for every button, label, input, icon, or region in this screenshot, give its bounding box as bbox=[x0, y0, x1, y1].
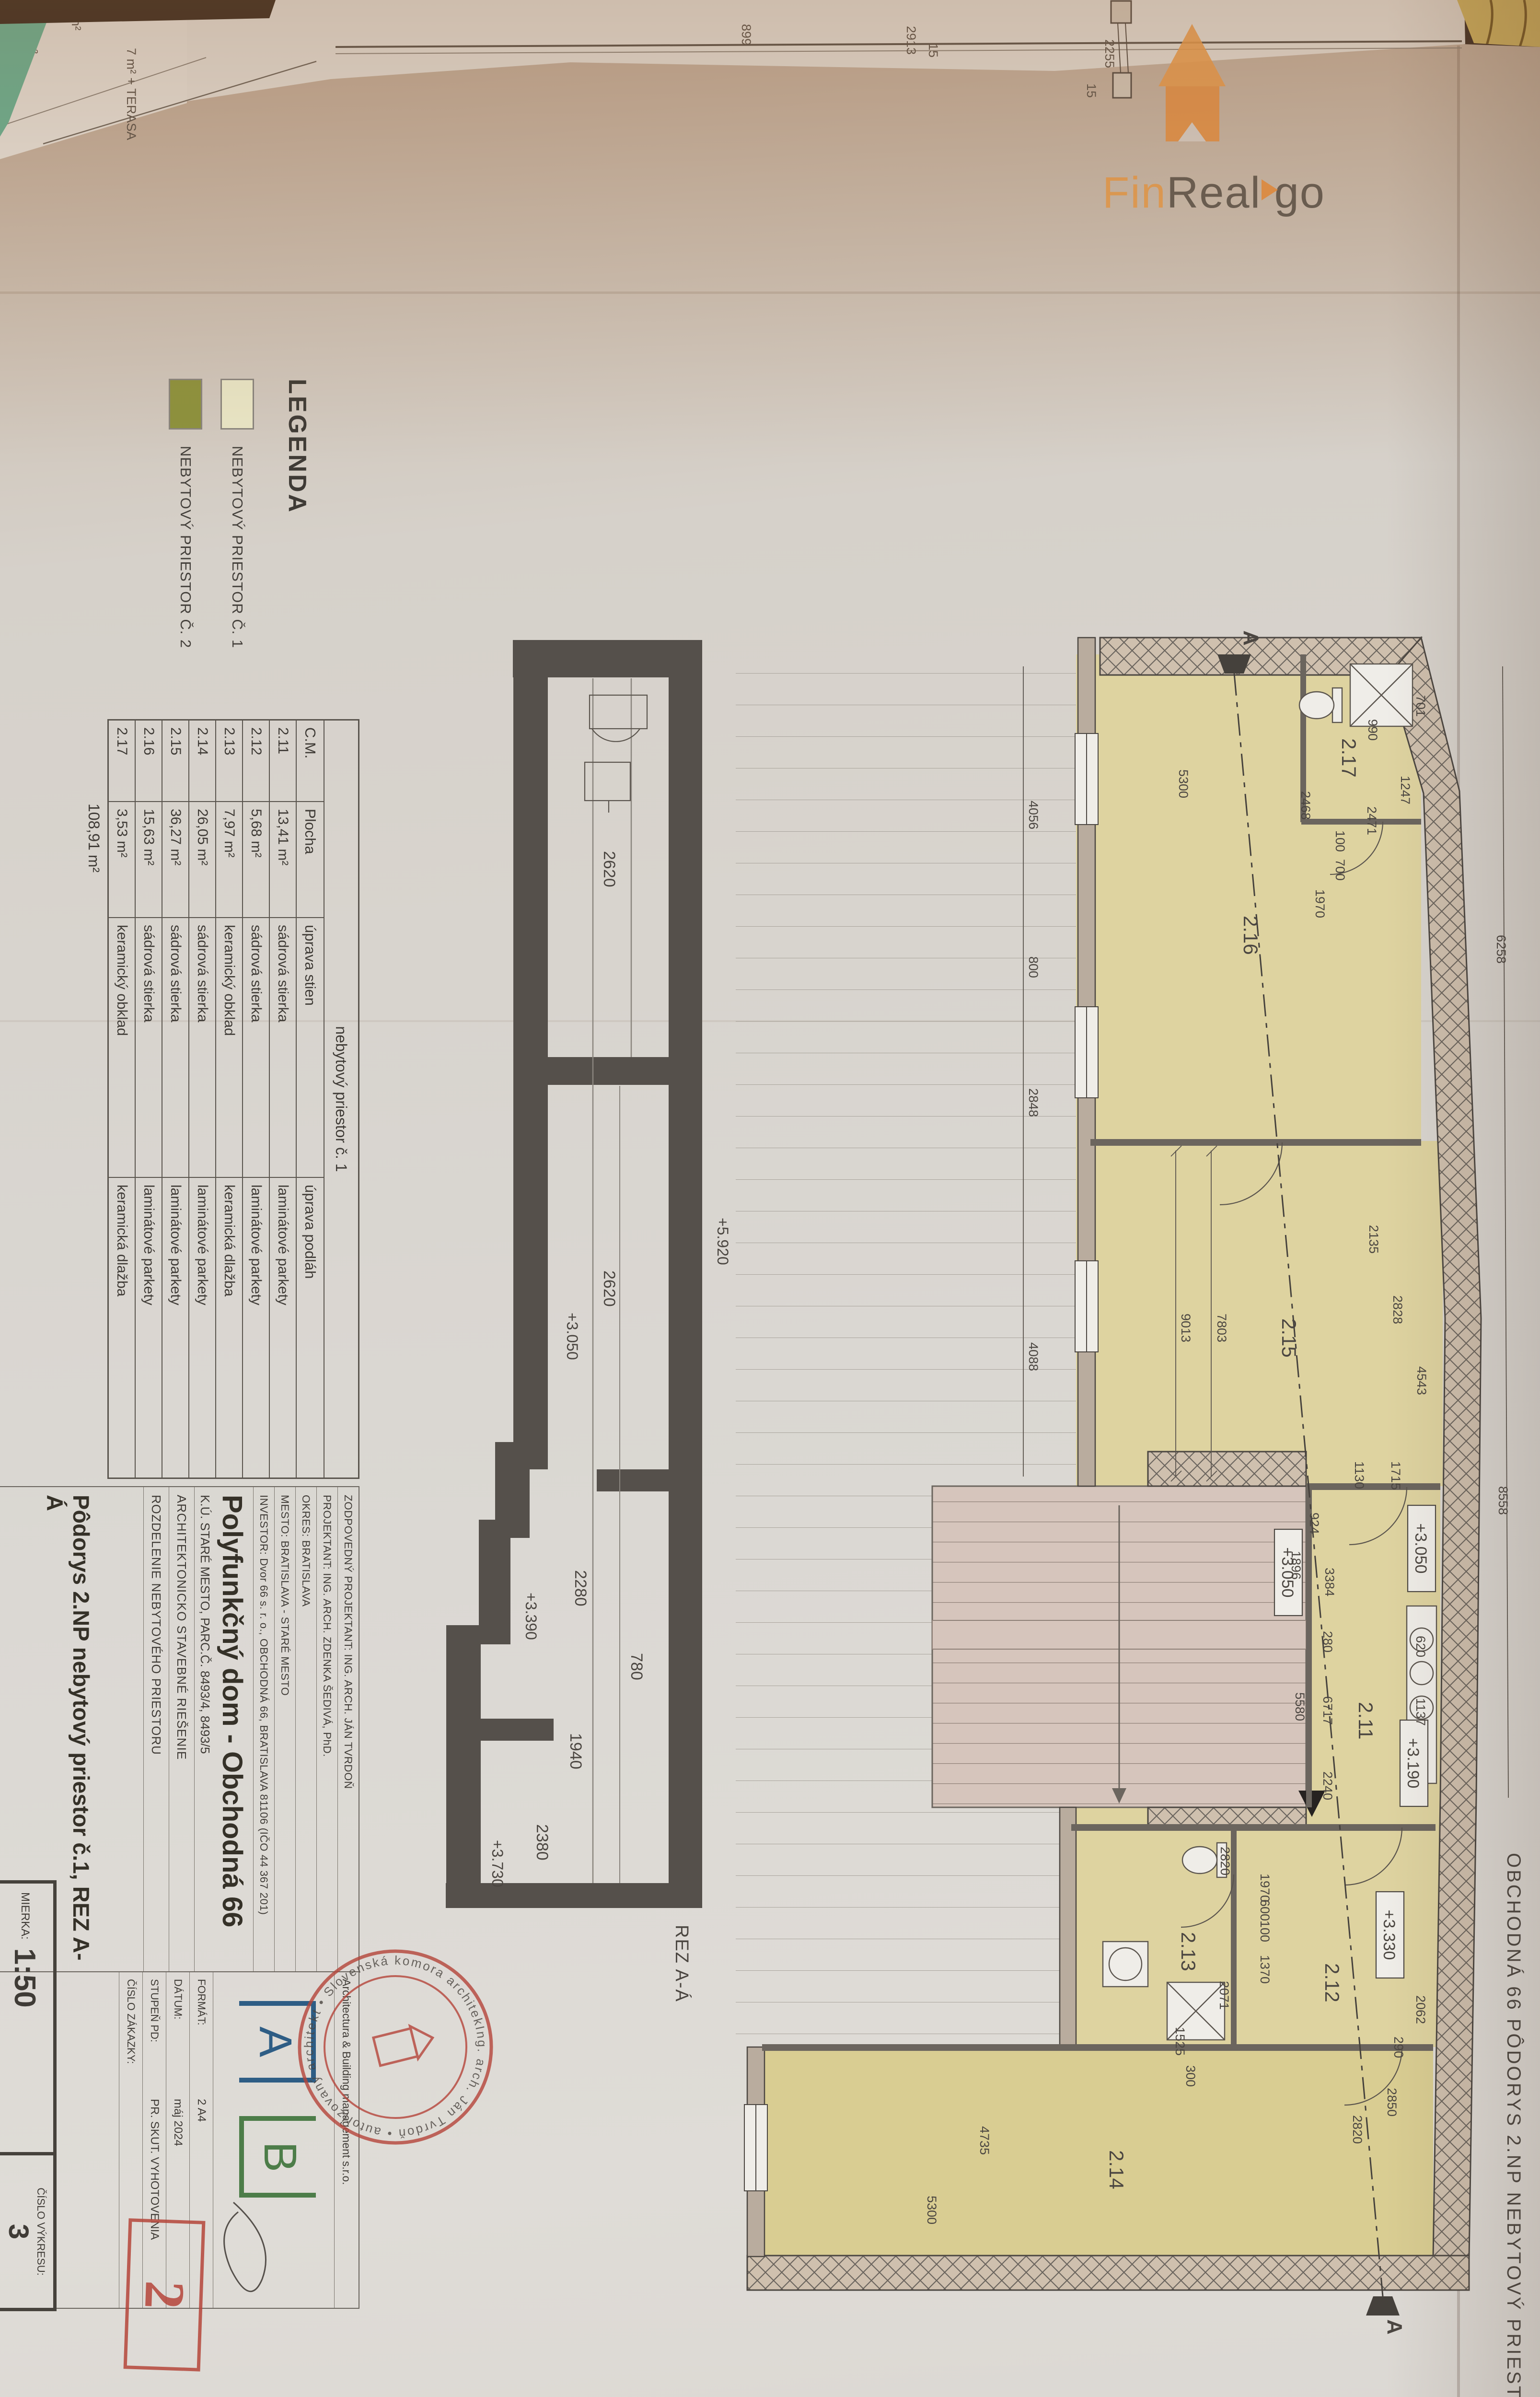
table-row: 2.1536,27 m²sádrová stierkalaminátové pa… bbox=[162, 721, 188, 1478]
legend-swatch bbox=[169, 379, 202, 430]
finrealgo-watermark: FinReal go bbox=[1093, 19, 1476, 225]
dimension-label: 1970 bbox=[1313, 889, 1327, 918]
dimension-label: 2820 bbox=[1218, 1847, 1232, 1875]
section-drawing: REZ A-Á 26202620228078019402380 +5.920+3… bbox=[446, 640, 731, 2002]
table-cell: sádrová stierka bbox=[136, 918, 162, 1178]
room-number-label: 2.12 bbox=[1321, 1963, 1343, 2002]
window bbox=[1075, 1261, 1098, 1352]
table-cell: laminátové parkety bbox=[189, 1178, 215, 1437]
dimension-label: 990 bbox=[1366, 719, 1380, 741]
dimension-label: 6717 bbox=[1320, 1696, 1335, 1725]
table-cell: 26,05 m² bbox=[189, 802, 215, 918]
dimension-label: 3384 bbox=[1322, 1568, 1337, 1596]
table-header-podlah: úprava podláh bbox=[297, 1178, 324, 1437]
section-dim-label: 2620 bbox=[600, 1270, 618, 1307]
table-cell: keramická dlažba bbox=[216, 1178, 242, 1437]
table-cell: keramický obklad bbox=[216, 918, 242, 1178]
courtyard-hatch bbox=[755, 1817, 1052, 2037]
table-cell: laminátové parkety bbox=[162, 1178, 188, 1437]
table-cell: 15,63 m² bbox=[136, 802, 162, 918]
dimension-label: 7803 bbox=[1215, 1314, 1229, 1342]
table-cell: 36,27 m² bbox=[162, 802, 188, 918]
section-level-label: +3.730 bbox=[489, 1840, 506, 1887]
legend-swatch bbox=[220, 379, 254, 430]
title-block-info-rows: ZODPOVEDNÝ PROJEKTANT: ING. ARCH. JÁN TV… bbox=[253, 1487, 359, 1971]
table-header-plocha: Plocha bbox=[297, 802, 324, 918]
desk-edge bbox=[0, 0, 276, 25]
dimension-label: 1715 bbox=[1389, 1461, 1403, 1490]
table-cell: sádrová stierka bbox=[270, 918, 296, 1178]
table-cell: 2.15 bbox=[162, 721, 188, 802]
project-parcel: K.Ú. STARÉ MESTO, PARC.Č. 8493/4, 8493/5 bbox=[197, 1495, 212, 1964]
section-dim-label: 2280 bbox=[571, 1570, 590, 1606]
dimension-label: 4543 bbox=[1414, 1366, 1429, 1395]
legend: LEGENDA NEBYTOVÝ PRIESTOR Č. 1NEBYTOVÝ P… bbox=[151, 379, 312, 743]
dimension-label: 4735 bbox=[977, 2126, 992, 2155]
table-header-cm: C.M. bbox=[297, 721, 324, 802]
field-value: 2 A4 bbox=[195, 2099, 208, 2122]
dimension-label: 2240 bbox=[1320, 1771, 1335, 1800]
shower-217 bbox=[1350, 664, 1413, 726]
dimension-label: 9013 bbox=[1179, 1314, 1193, 1342]
field-label: STUPEŇ PD: bbox=[148, 1972, 161, 2099]
table-cell: laminátové parkety bbox=[243, 1178, 269, 1437]
window bbox=[1075, 733, 1098, 825]
finrealgo-text: FinReal go bbox=[1102, 168, 1325, 218]
dimension-label: 2820 bbox=[1350, 2115, 1365, 2144]
room-table: nebytový priestor č. 1 C.M. Plocha úprav… bbox=[85, 719, 359, 1479]
dimension-label: 8558 bbox=[1496, 1486, 1510, 1515]
sheet-number-box: ČÍSLO VÝKRESU: 3 bbox=[0, 2155, 57, 2311]
dimension-label: 1130 bbox=[1352, 1461, 1366, 1489]
dimension-label: 5300 bbox=[1176, 769, 1191, 798]
title-block-info-row: MESTO: BRATISLAVA - STARÉ MESTO bbox=[274, 1487, 295, 1971]
dimension-label: 2468 bbox=[1298, 791, 1313, 820]
table-cell: 7,97 m² bbox=[216, 802, 242, 918]
washer-213 bbox=[1103, 1942, 1148, 1987]
level-label: +3.050 bbox=[1412, 1524, 1430, 1574]
table-cell: keramická dlažba bbox=[109, 1178, 135, 1437]
table-cell: keramický obklad bbox=[109, 918, 135, 1178]
table-cell: 2.11 bbox=[270, 721, 296, 802]
dimension-label: 800 bbox=[1026, 956, 1041, 978]
dimension-label: 1896 bbox=[1289, 1551, 1303, 1580]
dimension-label: 924 bbox=[1307, 1513, 1321, 1534]
table-body: 2.1113,41 m²sádrová stierkalaminátové pa… bbox=[109, 721, 296, 1478]
field-value: máj 2024 bbox=[171, 2099, 185, 2146]
title-block-info-row: OKRES: BRATISLAVA bbox=[295, 1487, 316, 1971]
scale-value: 1:50 bbox=[8, 1948, 42, 2008]
logo-real: Real bbox=[1167, 168, 1261, 217]
dimension-label: 2071 bbox=[1217, 1981, 1231, 2010]
section-dim-labels: 26202620228078019402380 bbox=[533, 851, 646, 1861]
level-label: +3.190 bbox=[1404, 1738, 1422, 1789]
table-cell: 13,41 m² bbox=[270, 802, 296, 918]
table-cell: 3,53 m² bbox=[109, 802, 135, 918]
room-number-label: 2.11 bbox=[1355, 1702, 1377, 1740]
title-block-info-row: PROJEKTANT: ING. ARCH. ZDENKA ŠEDIVÁ, Ph… bbox=[316, 1487, 337, 1971]
sheet-number-value: 3 bbox=[3, 2224, 35, 2239]
room-number-label: 2.14 bbox=[1105, 2150, 1128, 2189]
dimension-label: 5580 bbox=[1293, 1692, 1307, 1721]
dimension-label: 1370 bbox=[1258, 1955, 1272, 1984]
room-number-label: 2.15 bbox=[1278, 1318, 1300, 1358]
sheet-number-label: ČÍSLO VÝKRESU: bbox=[35, 2188, 47, 2275]
legend-item: NEBYTOVÝ PRIESTOR Č. 2 bbox=[169, 379, 202, 743]
section-marker-a2: A bbox=[1383, 2319, 1406, 2335]
legend-rows: NEBYTOVÝ PRIESTOR Č. 1NEBYTOVÝ PRIESTOR … bbox=[169, 379, 254, 743]
table-total: 108,91 m² bbox=[85, 719, 103, 1479]
table-cell: 5,68 m² bbox=[243, 802, 269, 918]
field-label: ČÍSLO ZÁKAZKY: bbox=[125, 1972, 137, 2099]
staircase bbox=[932, 1486, 1325, 1817]
legend-item: NEBYTOVÝ PRIESTOR Č. 1 bbox=[220, 379, 254, 743]
section-dim-label: 780 bbox=[627, 1653, 646, 1680]
section-wc-glyph bbox=[585, 695, 647, 813]
section-level-label: +3.050 bbox=[564, 1313, 581, 1360]
plan-and-section-svg: OBCHODNÁ 66 PÔDORYS 2.NP NEBYTOVÝ PRIEST… bbox=[405, 72, 1531, 2397]
dimension-label: 600 bbox=[1258, 1899, 1272, 1921]
dimension-label: 2828 bbox=[1390, 1295, 1405, 1324]
window bbox=[1075, 1007, 1098, 1098]
scale-box: MIERKA: 1:50 bbox=[0, 1880, 57, 2155]
section-marker-a: A bbox=[1239, 630, 1262, 646]
logo-fin: Fin bbox=[1102, 168, 1167, 217]
stage-row: ARCHITEKTONICKO STAVEBNÉ RIEŠENIE bbox=[169, 1487, 194, 1971]
dimension-label: 5300 bbox=[925, 2196, 939, 2224]
room-number-label: 2.13 bbox=[1177, 1932, 1200, 1971]
level-label: +3.330 bbox=[1380, 1910, 1398, 1960]
title-block-info-row: INVESTOR: Dvor 66 s. r. o., OBCHODNÁ 66,… bbox=[253, 1487, 274, 1971]
legend-label: NEBYTOVÝ PRIESTOR Č. 2 bbox=[177, 446, 194, 648]
logo-play-triangle bbox=[1262, 179, 1278, 200]
dimension-label: 4056 bbox=[1026, 801, 1041, 829]
dimension-label: 700 bbox=[1333, 859, 1347, 881]
dimension-label: 4088 bbox=[1026, 1342, 1041, 1371]
dimension-label: 1525 bbox=[1173, 2027, 1187, 2056]
section-level-label: +5.920 bbox=[714, 1218, 731, 1265]
dimension-label: 280 bbox=[1320, 1631, 1335, 1652]
table-cell: sádrová stierka bbox=[189, 918, 215, 1178]
dimension-label: 2850 bbox=[1385, 2088, 1399, 2117]
sheet-heading: OBCHODNÁ 66 PÔDORYS 2.NP NEBYTOVÝ PRIEST… bbox=[1503, 1853, 1525, 2397]
scale-row: MIERKA: 1:50 ČÍSLO VÝKRESU: 3 bbox=[0, 1880, 57, 2311]
table-title: nebytový priestor č. 1 bbox=[324, 721, 358, 1478]
dimension-label: 1970 bbox=[1258, 1873, 1272, 1902]
purpose-row: ROZDELENIE NEBYTOVÉHO PRIESTORU bbox=[143, 1487, 169, 1971]
dimension-label: 620 bbox=[1413, 1636, 1428, 1657]
section-level-label: +3.390 bbox=[522, 1593, 540, 1640]
field-label: FORMÁT: bbox=[195, 1972, 208, 2099]
title-block: ZODPOVEDNÝ PROJEKTANT: ING. ARCH. JÁN TV… bbox=[0, 1486, 359, 2309]
dimension-label: 100 bbox=[1333, 830, 1347, 852]
window bbox=[744, 2105, 767, 2191]
section-dim-label: 2380 bbox=[533, 1824, 551, 1861]
red-stamp-number: 2 bbox=[124, 2218, 206, 2371]
table-cell: 2.12 bbox=[243, 721, 269, 802]
table-row: 2.125,68 m²sádrová stierkalaminátové par… bbox=[242, 721, 269, 1478]
dimension-label: 300 bbox=[1183, 2065, 1198, 2087]
table-header-row: C.M. Plocha úprava stien úprava podláh bbox=[296, 721, 324, 1478]
dimension-label: 2471 bbox=[1365, 806, 1379, 835]
legend-title: LEGENDA bbox=[283, 379, 312, 743]
section-dim-label: 1940 bbox=[567, 1733, 585, 1769]
table-cell: laminátové parkety bbox=[270, 1178, 296, 1437]
photo-of-floorplan: 4 m²m²7 m² + TERASA899291315225515 bbox=[0, 0, 1540, 2397]
legend-label: NEBYTOVÝ PRIESTOR Č. 1 bbox=[229, 446, 246, 648]
section-label: REZ A-Á bbox=[672, 1925, 692, 2002]
dimension-label: 701 bbox=[1413, 695, 1428, 717]
dimension-label: 2848 bbox=[1026, 1088, 1041, 1117]
dimension-label: 1137 bbox=[1413, 1698, 1428, 1726]
table-cell: 2.13 bbox=[216, 721, 242, 802]
dimension-label: 2062 bbox=[1413, 1995, 1428, 2024]
table-row: 2.173,53 m²keramický obkladkeramická dla… bbox=[109, 721, 135, 1478]
project-cell: Polyfunkčný dom - Obchodná 66 K.Ú. STARÉ… bbox=[194, 1487, 253, 1971]
section-dim-label: 2620 bbox=[600, 851, 618, 887]
field-label: DÁTUM: bbox=[172, 1972, 184, 2099]
dimension-label: 2135 bbox=[1366, 1225, 1381, 1254]
room-number-label: 2.16 bbox=[1239, 916, 1262, 955]
dimension-label: 290 bbox=[1391, 2036, 1406, 2058]
title-block-info-row: ZODPOVEDNÝ PROJEKTANT: ING. ARCH. JÁN TV… bbox=[337, 1487, 359, 1971]
table-cell: 2.16 bbox=[136, 721, 162, 802]
table-cell: 2.14 bbox=[189, 721, 215, 802]
dimension-label: 6258 bbox=[1494, 935, 1508, 964]
table-cell: laminátové parkety bbox=[136, 1178, 162, 1437]
drawing-sheet-content: OBCHODNÁ 66 PÔDORYS 2.NP NEBYTOVÝ PRIEST… bbox=[0, 72, 1531, 2397]
table-cell: 2.17 bbox=[109, 721, 135, 802]
dimension-label: 100 bbox=[1258, 1920, 1272, 1942]
room-number-label: 2.17 bbox=[1338, 738, 1360, 778]
table-row: 2.1615,63 m²sádrová stierkalaminátové pa… bbox=[135, 721, 162, 1478]
scale-label: MIERKA: bbox=[18, 1884, 32, 1948]
table-cell: sádrová stierka bbox=[162, 918, 188, 1178]
table-cell: sádrová stierka bbox=[243, 918, 269, 1178]
table-header-stien: úprava stien bbox=[297, 918, 324, 1178]
table-row: 2.137,97 m²keramický obkladkeramická dla… bbox=[215, 721, 242, 1478]
project-title: Polyfunkčný dom - Obchodná 66 bbox=[216, 1495, 248, 1964]
table-row: 2.1113,41 m²sádrová stierkalaminátové pa… bbox=[269, 721, 296, 1478]
dimension-label: 1247 bbox=[1398, 776, 1413, 804]
table-row: 2.1426,05 m²sádrová stierkalaminátové pa… bbox=[188, 721, 215, 1478]
